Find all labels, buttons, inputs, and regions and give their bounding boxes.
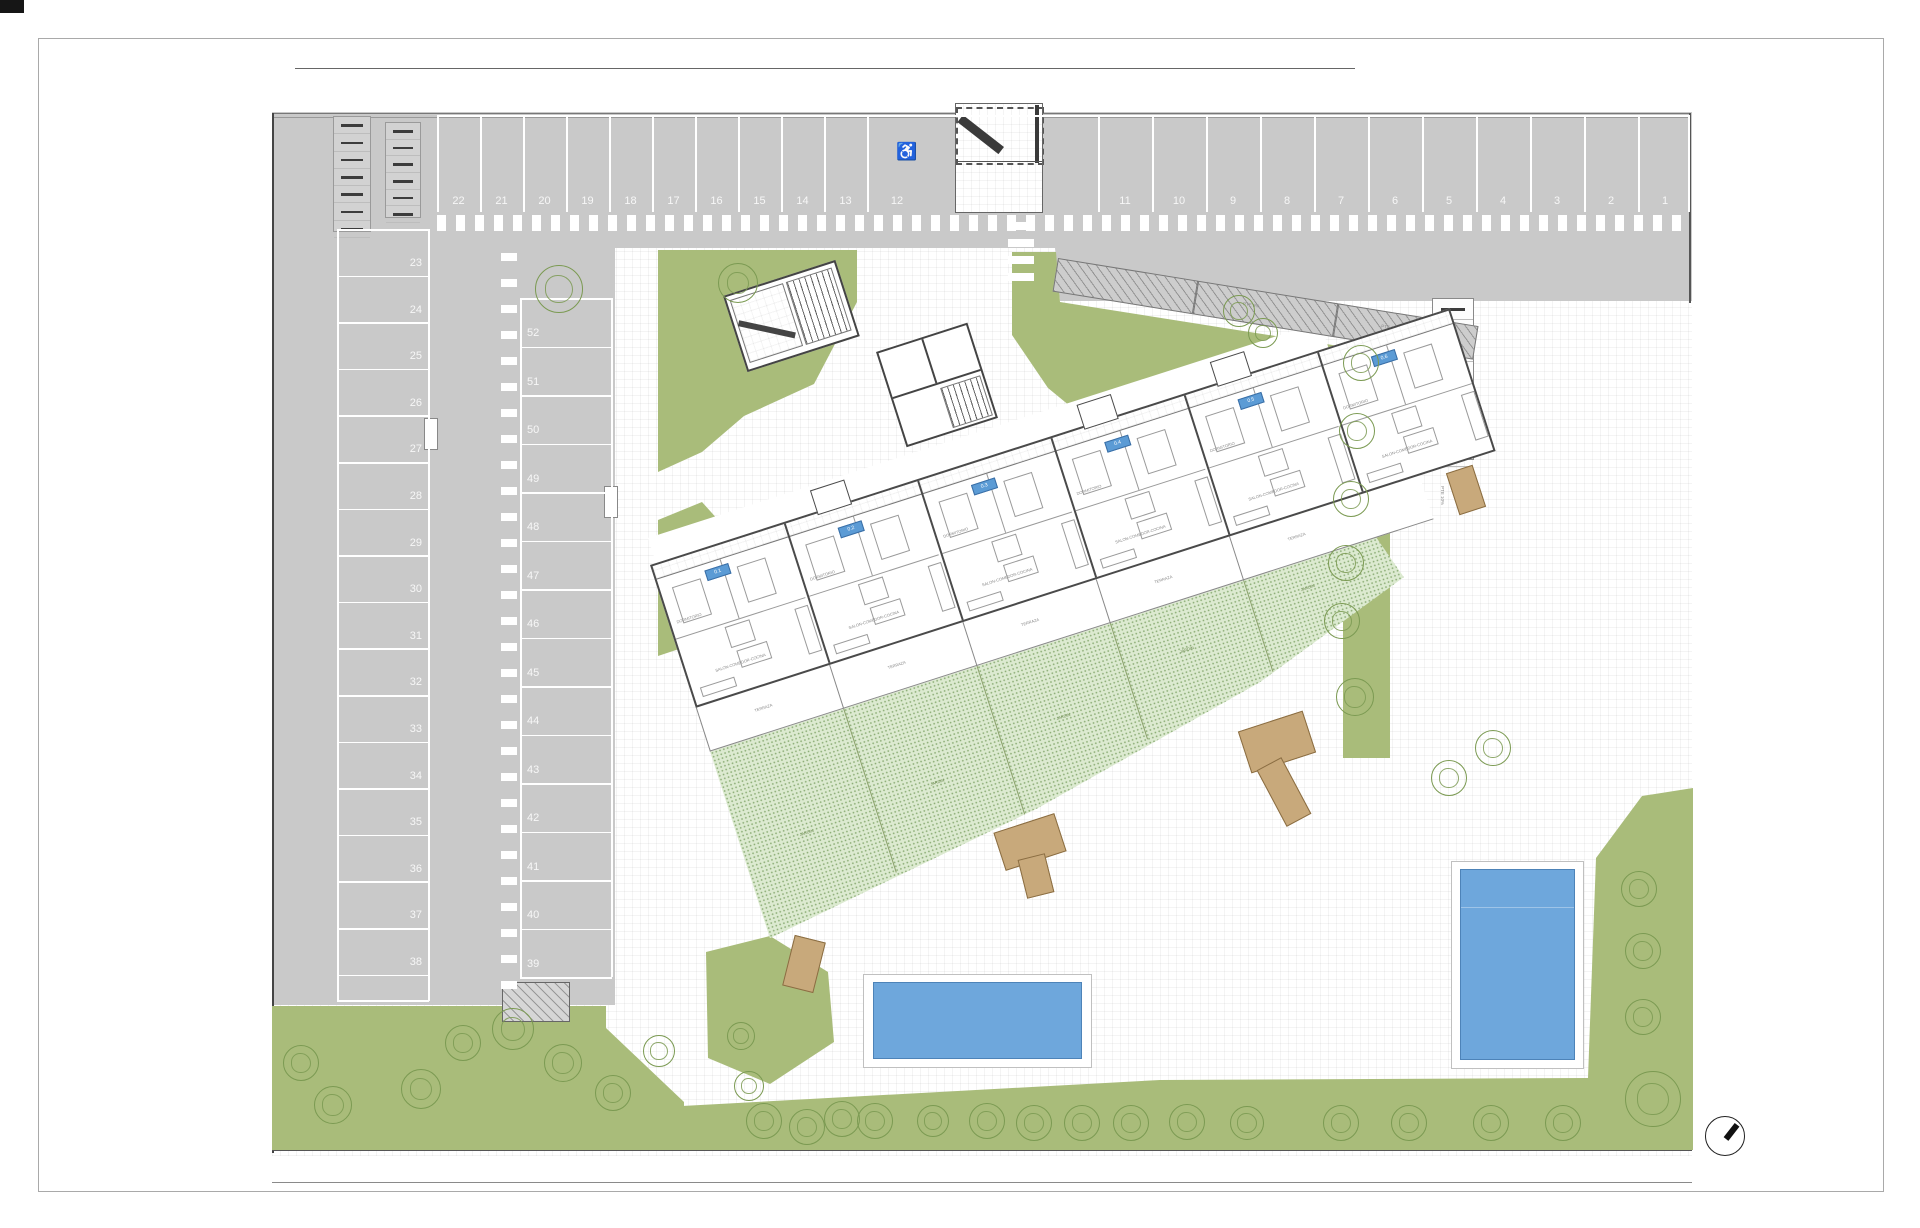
bike-icon	[393, 130, 413, 133]
crosswalk-dash	[1406, 215, 1415, 231]
crosswalk-dash	[475, 215, 484, 231]
stall-divider	[520, 977, 612, 979]
bike-icon	[341, 124, 363, 127]
crosswalk-dash	[1008, 222, 1034, 230]
lane-dash	[501, 357, 517, 365]
tree	[1016, 1105, 1052, 1141]
stall-divider	[337, 509, 429, 511]
tree	[1431, 760, 1467, 796]
tree	[1343, 345, 1379, 381]
tree	[1391, 1105, 1427, 1141]
crosswalk-dash	[1197, 215, 1206, 231]
crosswalk-dash	[1216, 215, 1225, 231]
parking-stall-number: 50	[527, 424, 559, 436]
parking-stall-number: 10	[1152, 195, 1206, 207]
stall-divider	[520, 880, 612, 882]
crosswalk-dash	[1387, 215, 1396, 231]
bike-rack-row	[334, 117, 370, 134]
crosswalk-dash	[532, 215, 541, 231]
crosswalk-dash	[1292, 215, 1301, 231]
tree	[1625, 999, 1661, 1035]
lane-dash	[501, 331, 517, 339]
parking-stall-number: 6	[1368, 195, 1422, 207]
bike-rack-row	[386, 156, 420, 173]
stall-divider	[520, 929, 612, 931]
bike-icon	[393, 213, 413, 216]
parking-stall-number: 3	[1530, 195, 1584, 207]
bike-icon	[393, 147, 413, 150]
crosswalk-dash	[1083, 215, 1092, 231]
crosswalk-dash	[969, 215, 978, 231]
tree	[445, 1025, 481, 1061]
tree	[595, 1075, 631, 1111]
crosswalk-dash	[1159, 215, 1168, 231]
lane-dash	[501, 825, 517, 833]
stall-divider	[520, 492, 612, 494]
stall-divider	[337, 648, 429, 650]
lane-dash	[501, 955, 517, 963]
lane-dash	[501, 539, 517, 547]
parking-stall-number: 47	[527, 570, 559, 582]
sofa	[1233, 505, 1270, 526]
crosswalk-dash	[1368, 215, 1377, 231]
tree	[789, 1109, 825, 1145]
tree	[857, 1103, 893, 1139]
crosswalk-dash	[1615, 215, 1624, 231]
parking-stall-number: 8	[1260, 195, 1314, 207]
parking-stall-number: 31	[390, 630, 422, 642]
tree	[1248, 318, 1278, 348]
parking-stall-number: 19	[566, 195, 609, 207]
stall-divider	[520, 735, 612, 737]
bike-rack-row	[334, 186, 370, 203]
crosswalk-dash	[570, 215, 579, 231]
parking-stall-number: 9	[1206, 195, 1260, 207]
parking-stall-number: 52	[527, 327, 559, 339]
tree	[1169, 1104, 1205, 1140]
tree	[1323, 1105, 1359, 1141]
crosswalk-dash	[1482, 215, 1491, 231]
parking-stall-number: 25	[390, 350, 422, 362]
parking-stall-number: 39	[527, 958, 559, 970]
tree	[1473, 1105, 1509, 1141]
crosswalk-dash	[627, 215, 636, 231]
crosswalk-dash	[931, 215, 940, 231]
lane-dash	[501, 461, 517, 469]
bed	[1270, 386, 1310, 431]
stall-divider	[337, 1000, 429, 1002]
crosswalk-dash	[1444, 215, 1453, 231]
tree	[1625, 933, 1661, 969]
stall-divider	[337, 788, 429, 790]
lane-dash	[501, 877, 517, 885]
tree	[544, 1044, 582, 1082]
sofa	[1366, 463, 1403, 484]
crosswalk-dash	[760, 215, 769, 231]
crosswalk-dash	[1235, 215, 1244, 231]
stall-divider	[520, 541, 612, 543]
crosswalk-dash	[1102, 215, 1111, 231]
crosswalk-dash	[836, 215, 845, 231]
stall-divider	[520, 395, 612, 397]
crosswalk-dash	[1425, 215, 1434, 231]
south-boundary-line-2	[272, 1182, 1692, 1183]
bed	[1003, 472, 1043, 517]
west-boundary-line	[272, 113, 274, 1153]
parking-stall-number: 48	[527, 521, 559, 533]
crosswalk-dash	[1539, 215, 1548, 231]
lane-dash	[501, 279, 517, 287]
bike-rack-row	[386, 140, 420, 157]
lane-dash	[501, 435, 517, 443]
parking-stall-number: 27	[390, 443, 422, 455]
crosswalk-dash	[437, 215, 446, 231]
unit-tag: 0.3	[971, 477, 998, 495]
bike-icon	[341, 142, 363, 145]
crosswalk-dash	[950, 215, 959, 231]
crosswalk-dash	[874, 215, 883, 231]
lane-dash	[501, 409, 517, 417]
north-boundary-line	[295, 68, 1355, 69]
parking-stall-number: 37	[390, 909, 422, 921]
unit-tag: 0.1	[704, 563, 731, 581]
tree	[1333, 481, 1369, 517]
crosswalk-dash	[855, 215, 864, 231]
parking-stall-number: 2	[1584, 195, 1638, 207]
lane-dash	[501, 773, 517, 781]
tree	[1223, 295, 1255, 327]
lane-dash	[501, 591, 517, 599]
bike-rack-row	[386, 206, 420, 223]
parking-stall-number: 26	[390, 397, 422, 409]
stall-divider	[337, 555, 429, 557]
bike-rack-row	[334, 169, 370, 186]
crosswalk-dash	[551, 215, 560, 231]
crosswalk-dash	[1008, 256, 1034, 264]
crosswalk-dash	[1008, 239, 1034, 247]
bathroom	[1124, 491, 1155, 520]
bike-rack-row	[386, 190, 420, 207]
tree	[1328, 545, 1364, 581]
bike-rack-west-a	[333, 116, 371, 232]
parking-stall-number: 12	[867, 195, 927, 207]
stall-divider	[337, 322, 429, 324]
parking-stall-number: 51	[527, 376, 559, 388]
parking-stall-number: 30	[390, 583, 422, 595]
bike-rack-row	[386, 173, 420, 190]
parking-stall-number: 38	[390, 956, 422, 968]
parking-stall-number: 46	[527, 618, 559, 630]
parking-stall-number: 45	[527, 667, 559, 679]
gate-west	[424, 418, 438, 450]
crosswalk-dash	[1501, 215, 1510, 231]
stall-divider	[337, 928, 429, 930]
parking-stall-number: 49	[527, 473, 559, 485]
bike-icon	[393, 180, 413, 183]
north-arrow	[1705, 1116, 1745, 1156]
corner-mark	[0, 0, 24, 13]
crosswalk-dash	[684, 215, 693, 231]
crosswalk-dash	[1577, 215, 1586, 231]
crosswalk-dash	[1140, 215, 1149, 231]
stall-divider	[520, 686, 612, 688]
bike-icon	[341, 176, 363, 179]
parking-stall-number: 20	[523, 195, 566, 207]
tree	[824, 1101, 860, 1137]
stall-divider	[337, 602, 429, 604]
stall-divider	[1688, 116, 1690, 212]
bin-store-structure	[955, 103, 1043, 213]
unit-tag: 0.2	[838, 520, 865, 538]
parking-stall-number: 1	[1638, 195, 1692, 207]
crosswalk-dash	[1672, 215, 1681, 231]
tree	[1324, 603, 1360, 639]
bike-rack-row	[334, 152, 370, 169]
stall-divider	[337, 881, 429, 883]
crosswalk-dash	[1558, 215, 1567, 231]
parking-stall-number: 23	[390, 257, 422, 269]
crosswalk-dash	[456, 215, 465, 231]
lane-dash	[501, 851, 517, 859]
tree	[535, 265, 583, 313]
stall-divider	[520, 347, 612, 349]
tree	[1230, 1106, 1264, 1140]
stall-top-line	[437, 115, 1690, 117]
parking-stall-number: 44	[527, 715, 559, 727]
crosswalk-dash	[494, 215, 503, 231]
parking-stall-number: 40	[527, 909, 559, 921]
parking-stall-number: 36	[390, 863, 422, 875]
parking-stall-number: 22	[437, 195, 480, 207]
tree	[283, 1045, 319, 1081]
parking-stall-number: 5	[1422, 195, 1476, 207]
crosswalk-dash	[1463, 215, 1472, 231]
crosswalk-dash	[1008, 273, 1034, 281]
tree	[1339, 413, 1375, 449]
crosswalk-dash	[817, 215, 826, 231]
lane-dash	[501, 305, 517, 313]
parking-stall-number: 33	[390, 723, 422, 735]
crosswalk-dash	[608, 215, 617, 231]
parking-stall-number: 16	[695, 195, 738, 207]
sofa	[833, 634, 870, 655]
crosswalk-dash	[1121, 215, 1130, 231]
tree	[314, 1086, 352, 1124]
parking-stall-number: 11	[1098, 195, 1152, 207]
bike-icon	[341, 193, 363, 196]
crosswalk-dash	[741, 215, 750, 231]
tree	[718, 263, 758, 303]
parking-stall-number: 14	[781, 195, 824, 207]
crosswalk-dash	[1311, 215, 1320, 231]
tree	[492, 1008, 534, 1050]
unit-tag: 0.4	[1104, 435, 1131, 453]
lane-dash	[501, 513, 517, 521]
lane-dash	[501, 799, 517, 807]
tree	[746, 1103, 782, 1139]
bathroom	[1258, 448, 1289, 477]
bathroom	[1391, 405, 1422, 434]
tree	[1545, 1105, 1581, 1141]
main-pool	[873, 982, 1082, 1059]
tree	[969, 1103, 1005, 1139]
crosswalk-dash	[798, 215, 807, 231]
parking-stall-number: 29	[390, 537, 422, 549]
stall-divider	[520, 444, 612, 446]
parking-stall-number: 42	[527, 812, 559, 824]
stall-divider	[337, 975, 429, 977]
lane-dash	[501, 383, 517, 391]
stall-divider	[337, 276, 429, 278]
bike-icon	[341, 211, 363, 214]
tree	[643, 1035, 675, 1067]
wheelchair-icon: ♿	[896, 142, 917, 162]
parking-stall-number: 13	[824, 195, 867, 207]
parking-stall-number: 4	[1476, 195, 1530, 207]
bed	[1137, 429, 1177, 474]
bed	[737, 557, 777, 602]
stall-divider	[337, 695, 429, 697]
lane-dash	[501, 669, 517, 677]
parking-stall-number: 24	[390, 304, 422, 316]
parking-stall-number: 7	[1314, 195, 1368, 207]
parking-stall-number: 17	[652, 195, 695, 207]
tree	[1336, 678, 1374, 716]
lane-dash	[501, 617, 517, 625]
crosswalk-dash	[988, 215, 997, 231]
stall-divider	[337, 415, 429, 417]
parking-stall-number: 21	[480, 195, 523, 207]
crosswalk-dash	[1064, 215, 1073, 231]
crosswalk-dash	[1596, 215, 1605, 231]
parking-stall-number: 28	[390, 490, 422, 502]
lane-dash	[501, 981, 517, 989]
bike-icon	[393, 163, 413, 166]
tree	[1113, 1105, 1149, 1141]
stall-divider	[337, 742, 429, 744]
parking-stall-number: 43	[527, 764, 559, 776]
crosswalk-dash	[1045, 215, 1054, 231]
south-boundary-line-1	[272, 1150, 1692, 1151]
parking-stall-number: 18	[609, 195, 652, 207]
lane-dash	[501, 565, 517, 573]
sofa	[1100, 548, 1137, 569]
parking-stall-number: 15	[738, 195, 781, 207]
parking-stall-number: 41	[527, 861, 559, 873]
bike-rack-west-b	[385, 122, 421, 218]
stall-col-line	[337, 229, 339, 1001]
lane-dash	[501, 487, 517, 495]
crosswalk-dash	[912, 215, 921, 231]
tree	[727, 1022, 755, 1050]
stall-divider	[337, 229, 429, 231]
bike-rack-row	[386, 123, 420, 140]
bike-rack-row	[334, 203, 370, 220]
crosswalk-dash	[1349, 215, 1358, 231]
tree	[1625, 1071, 1681, 1127]
parking-stall-number: 32	[390, 676, 422, 688]
bike-rack-row	[334, 134, 370, 151]
tree	[1064, 1105, 1100, 1141]
crosswalk-dash	[779, 215, 788, 231]
stall-divider	[520, 783, 612, 785]
bathroom	[991, 534, 1022, 563]
stall-divider	[337, 369, 429, 371]
bathroom	[725, 619, 756, 648]
crosswalk-dash	[1634, 215, 1643, 231]
crosswalk-dash	[1254, 215, 1263, 231]
crosswalk-dash	[646, 215, 655, 231]
lane-dash	[501, 695, 517, 703]
lane-dash	[501, 929, 517, 937]
crosswalk-dash	[1330, 215, 1339, 231]
tree	[1621, 871, 1657, 907]
parking-stall-number: 35	[390, 816, 422, 828]
bike-icon	[393, 197, 413, 200]
tree	[1475, 730, 1511, 766]
stall-divider	[337, 835, 429, 837]
tree	[917, 1105, 949, 1137]
crosswalk-dash	[1653, 215, 1662, 231]
bike-icon	[341, 159, 363, 162]
north-arrow-needle	[1724, 1123, 1740, 1141]
bathroom	[858, 576, 889, 605]
stall-divider	[520, 589, 612, 591]
unit-tag: 0.5	[1238, 392, 1265, 410]
lane-dash	[501, 903, 517, 911]
lane-dash	[501, 643, 517, 651]
stall-col-line	[428, 229, 430, 1001]
tree	[734, 1071, 764, 1101]
crosswalk-dash	[722, 215, 731, 231]
tree	[401, 1069, 441, 1109]
small-pool	[1460, 869, 1575, 1060]
bed	[1403, 343, 1443, 388]
crosswalk-dash	[893, 215, 902, 231]
bed	[870, 515, 910, 560]
stall-divider	[337, 462, 429, 464]
stall-divider	[520, 638, 612, 640]
sofa	[966, 591, 1003, 612]
crosswalk-dash	[1273, 215, 1282, 231]
drawing-sheet: ♿ PTE 8% PTE 8% PTE 10% JARDINJARDINJARD…	[0, 0, 1920, 1228]
stall-divider	[520, 832, 612, 834]
lane-dash	[501, 253, 517, 261]
crosswalk-dash	[703, 215, 712, 231]
crosswalk-dash	[589, 215, 598, 231]
lane-dash	[501, 747, 517, 755]
crosswalk-dash	[1178, 215, 1187, 231]
sofa	[700, 677, 737, 698]
crosswalk-dash	[665, 215, 674, 231]
crosswalk-dash	[513, 215, 522, 231]
lane-dash	[501, 721, 517, 729]
crosswalk-dash	[1520, 215, 1529, 231]
parking-stall-number: 34	[390, 770, 422, 782]
